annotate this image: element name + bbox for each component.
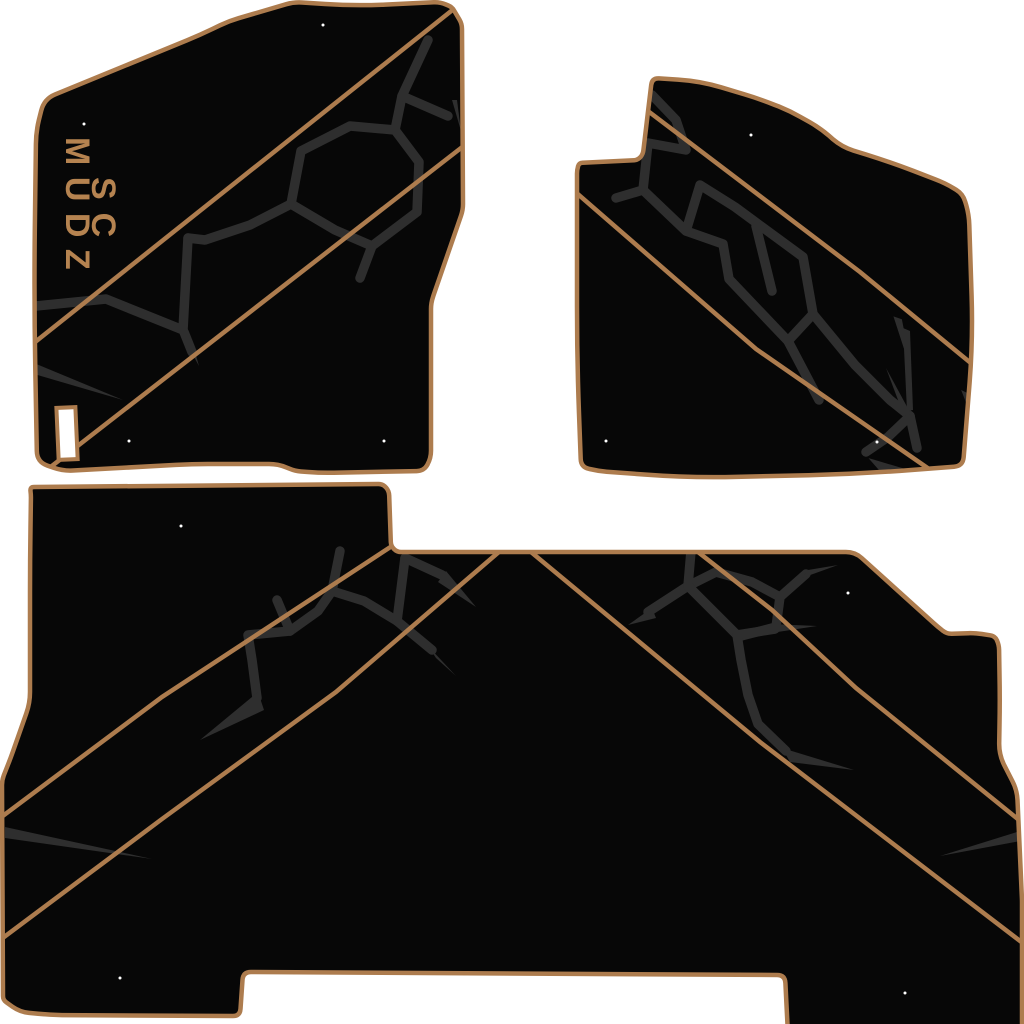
svg-text:MUDZ: MUDZ <box>58 137 96 281</box>
